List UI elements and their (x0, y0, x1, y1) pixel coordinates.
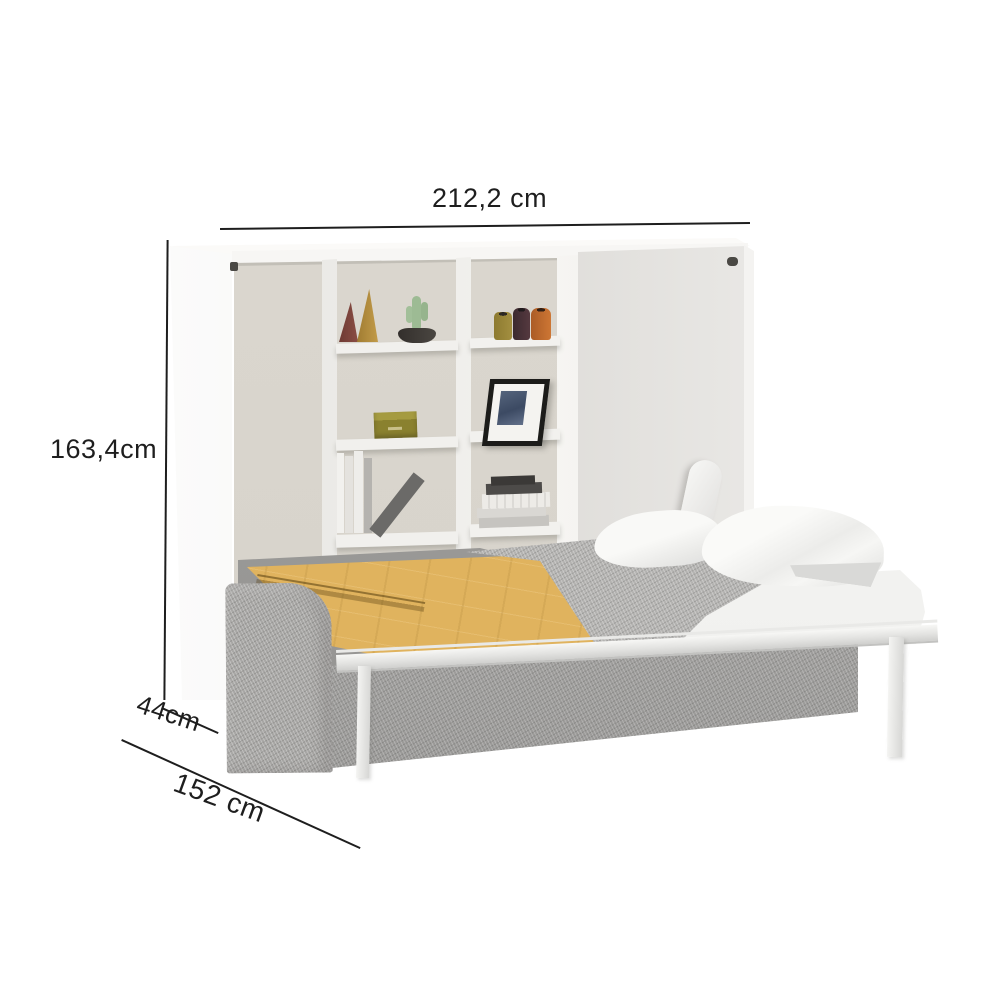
decor-book-2 (345, 456, 353, 533)
decor-book-4 (364, 458, 372, 533)
bed-leg-right (887, 637, 904, 757)
width-dimension-label: 212,2 cm (432, 183, 547, 214)
decor-storage-box-olive (374, 411, 418, 438)
decor-storage-box-label (388, 427, 402, 430)
sofa-armrest (225, 583, 333, 774)
width-dimension-line (220, 222, 750, 230)
decor-book-1 (337, 453, 344, 533)
decor-jar-orange (531, 308, 551, 340)
decor-picture-frame-art (497, 391, 527, 425)
decor-cactus-body (412, 296, 421, 331)
hinge-left-icon (230, 262, 238, 271)
height-dimension-line (163, 240, 168, 700)
extension-dimension-label: 152 cm (169, 767, 269, 830)
decor-book-stack-layer5 (491, 475, 535, 486)
bed-leg-left (356, 666, 371, 778)
hinge-right-icon (727, 257, 738, 266)
decor-book-3 (354, 451, 363, 533)
product-dimension-diagram: 212,2 cm 163,4cm 44cm 152 cm (0, 0, 1000, 1000)
decor-cactus-arm-right (421, 302, 428, 321)
height-dimension-label: 163,4cm (50, 434, 157, 465)
decor-jar-olive (494, 312, 512, 340)
decor-cactus-pot (398, 328, 436, 343)
decor-jar-dark-brown (513, 308, 530, 340)
